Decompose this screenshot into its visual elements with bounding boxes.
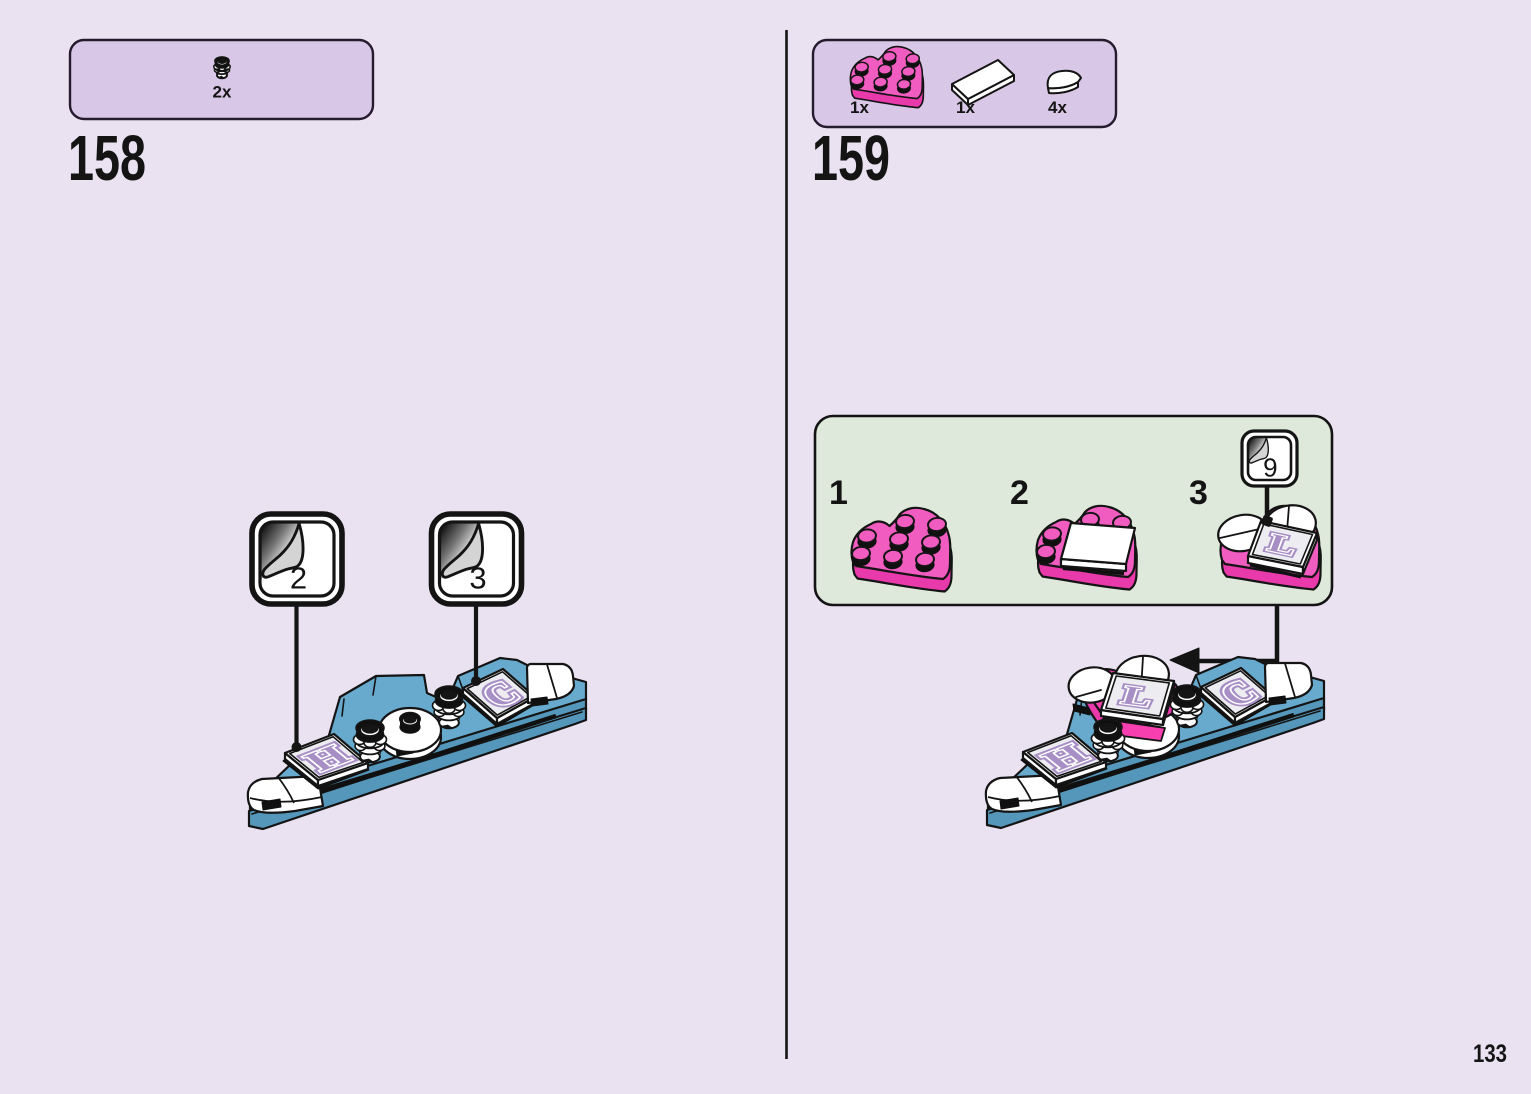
svg-text:1x: 1x	[956, 98, 975, 117]
svg-text:4x: 4x	[1048, 98, 1067, 117]
svg-text:158: 158	[68, 122, 146, 194]
svg-text:1: 1	[829, 474, 848, 512]
svg-text:3: 3	[1189, 474, 1208, 512]
svg-text:159: 159	[812, 122, 890, 194]
svg-text:2: 2	[290, 561, 307, 596]
svg-text:133: 133	[1473, 1040, 1507, 1068]
svg-text:9: 9	[1263, 453, 1277, 483]
svg-text:2: 2	[1010, 474, 1029, 512]
svg-text:3: 3	[469, 561, 486, 596]
svg-text:2x: 2x	[213, 83, 232, 102]
svg-text:1x: 1x	[850, 98, 869, 117]
